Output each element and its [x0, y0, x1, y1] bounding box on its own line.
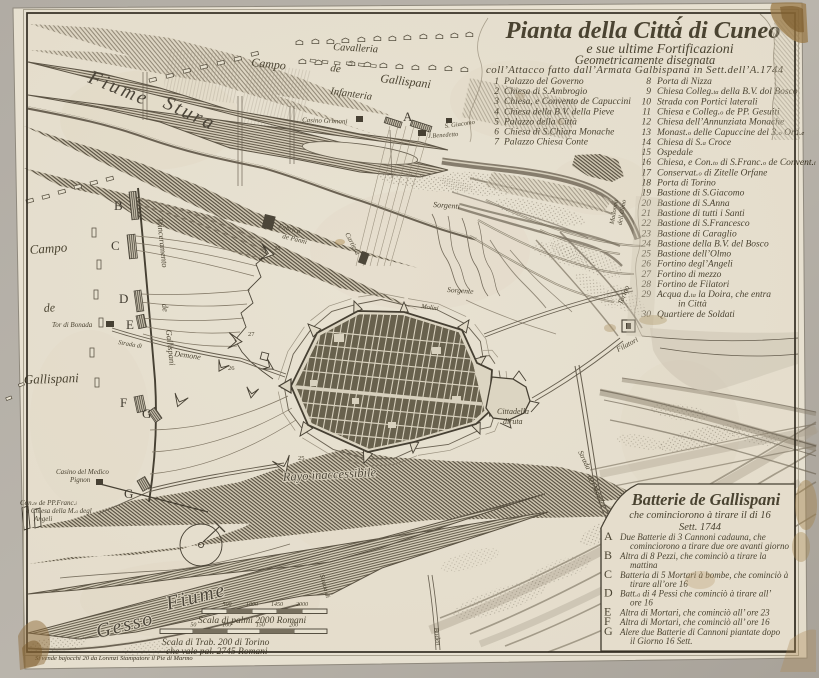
svg-text:Si vende bajocchi 20 da Lorenz: Si vende bajocchi 20 da Lorenzi Stampato… — [35, 655, 193, 662]
